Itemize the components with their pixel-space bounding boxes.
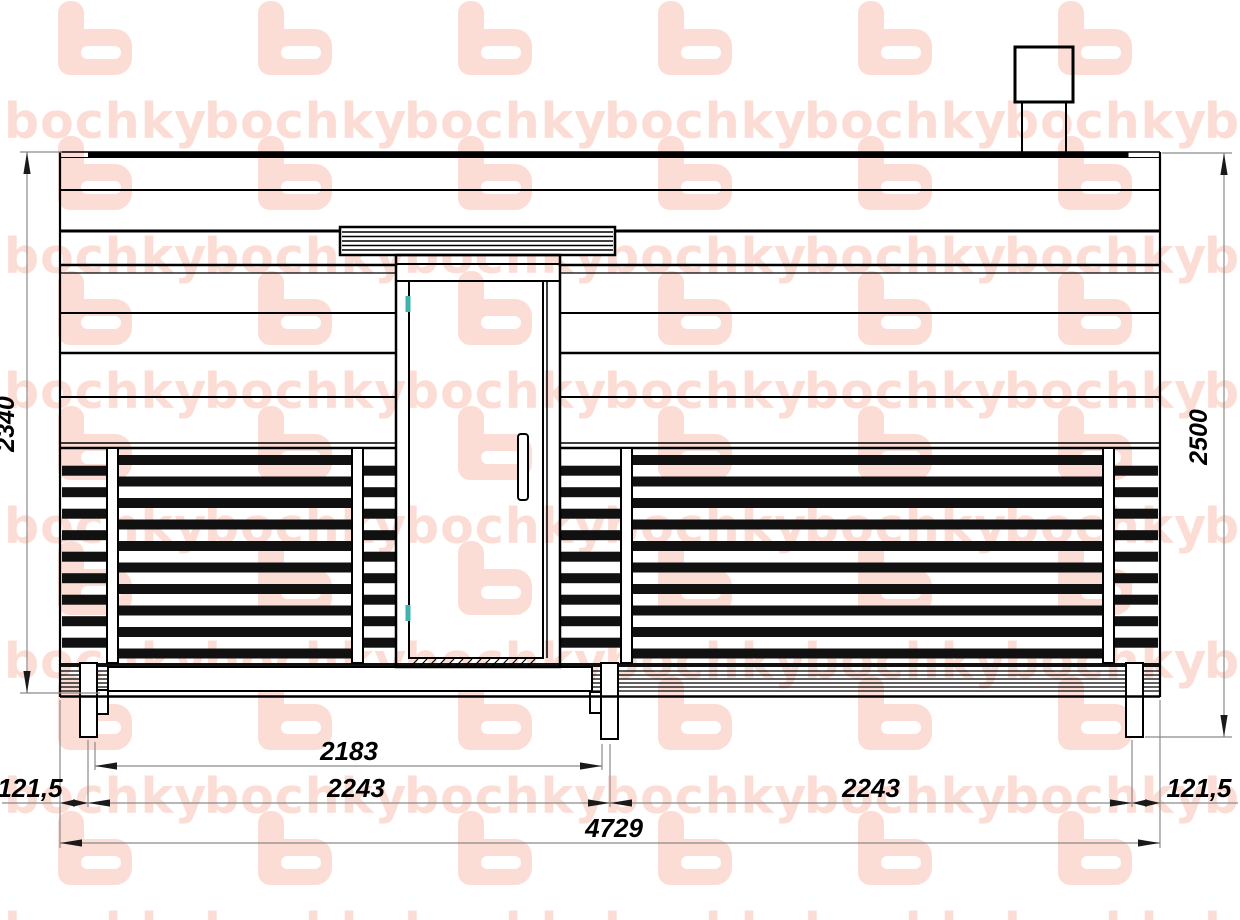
- dim-span-clear: 2183: [319, 736, 378, 766]
- leg-step-block: [590, 692, 601, 713]
- dim-height-total: 2500: [1185, 409, 1213, 466]
- entry-door: [396, 255, 560, 667]
- support-leg-middle: [601, 663, 618, 739]
- dim-length-total: 4729: [584, 813, 643, 843]
- door-frame: [396, 255, 560, 667]
- porch-beam: [108, 667, 592, 691]
- screen-post: [107, 448, 118, 663]
- door-hinge-top: [406, 296, 411, 312]
- dim-height-wall: 2340: [0, 396, 20, 453]
- drawing-canvas: bochky°bochky°bochky°bochky°bochky°bochk…: [0, 0, 1240, 920]
- dim-offset-left: 121,5: [0, 773, 63, 803]
- support-leg-right: [1126, 663, 1143, 737]
- support-leg-left: [80, 663, 97, 737]
- door-hinge-bottom: [406, 605, 411, 621]
- dim-offset-right: 121,5: [1166, 773, 1232, 803]
- chimney: [1015, 47, 1073, 152]
- chimney-cap: [1015, 47, 1073, 102]
- door-handle: [518, 434, 528, 500]
- dim-module-left: 2243: [326, 773, 385, 803]
- slat-screens: [62, 455, 1158, 659]
- dim-module-right: 2243: [841, 773, 900, 803]
- screen-post: [352, 448, 363, 663]
- elevation-drawing: 2340 2500 2183 2243 2243 121,5 121,5 472…: [0, 0, 1240, 920]
- door-canopy: [340, 227, 615, 255]
- screen-post: [1103, 448, 1114, 663]
- flat-roof: [60, 152, 1160, 158]
- screen-post: [621, 448, 632, 663]
